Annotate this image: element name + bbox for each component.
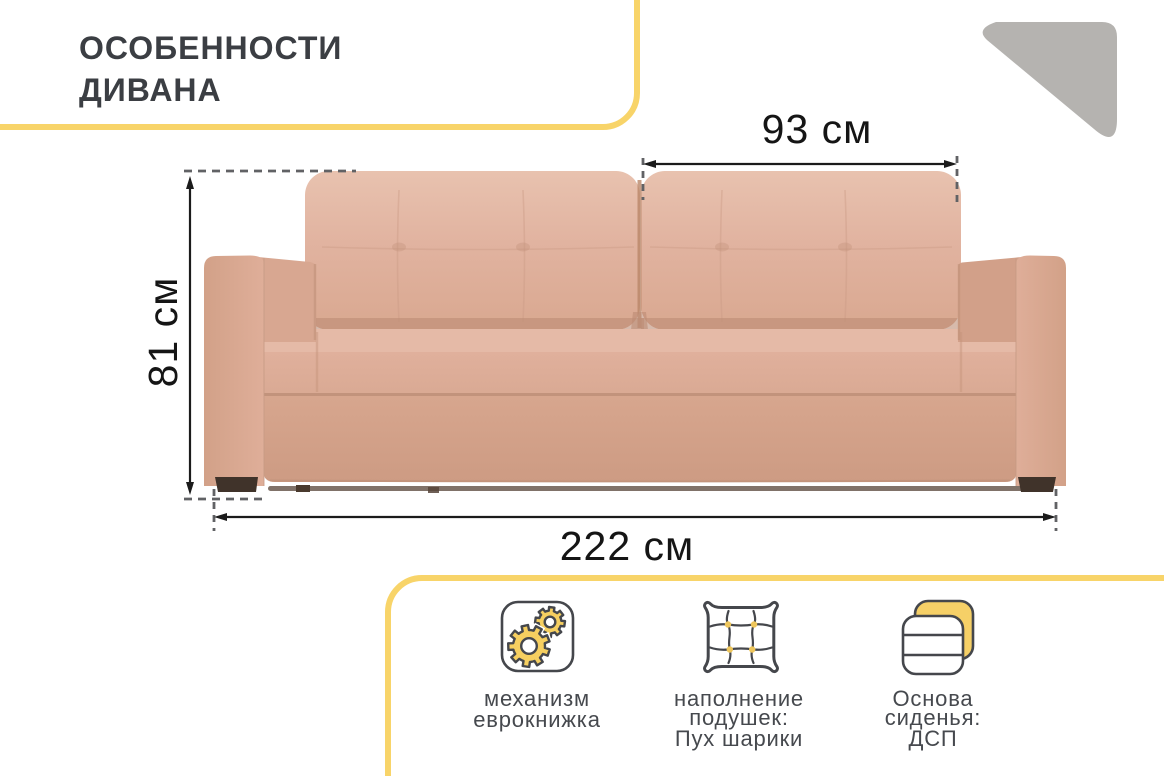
svg-text:ДСП: ДСП: [909, 726, 958, 751]
svg-text:ОСОБЕННОСТИ: ОСОБЕННОСТИ: [79, 30, 342, 66]
svg-text:еврокнижка: еврокнижка: [473, 707, 601, 732]
svg-text:93 см: 93 см: [762, 106, 873, 152]
svg-text:222 см: 222 см: [560, 523, 695, 569]
svg-text:81 см: 81 см: [140, 277, 186, 388]
svg-text:Пух шарики: Пух шарики: [675, 726, 803, 751]
svg-text:ДИВАНА: ДИВАНА: [79, 72, 222, 108]
